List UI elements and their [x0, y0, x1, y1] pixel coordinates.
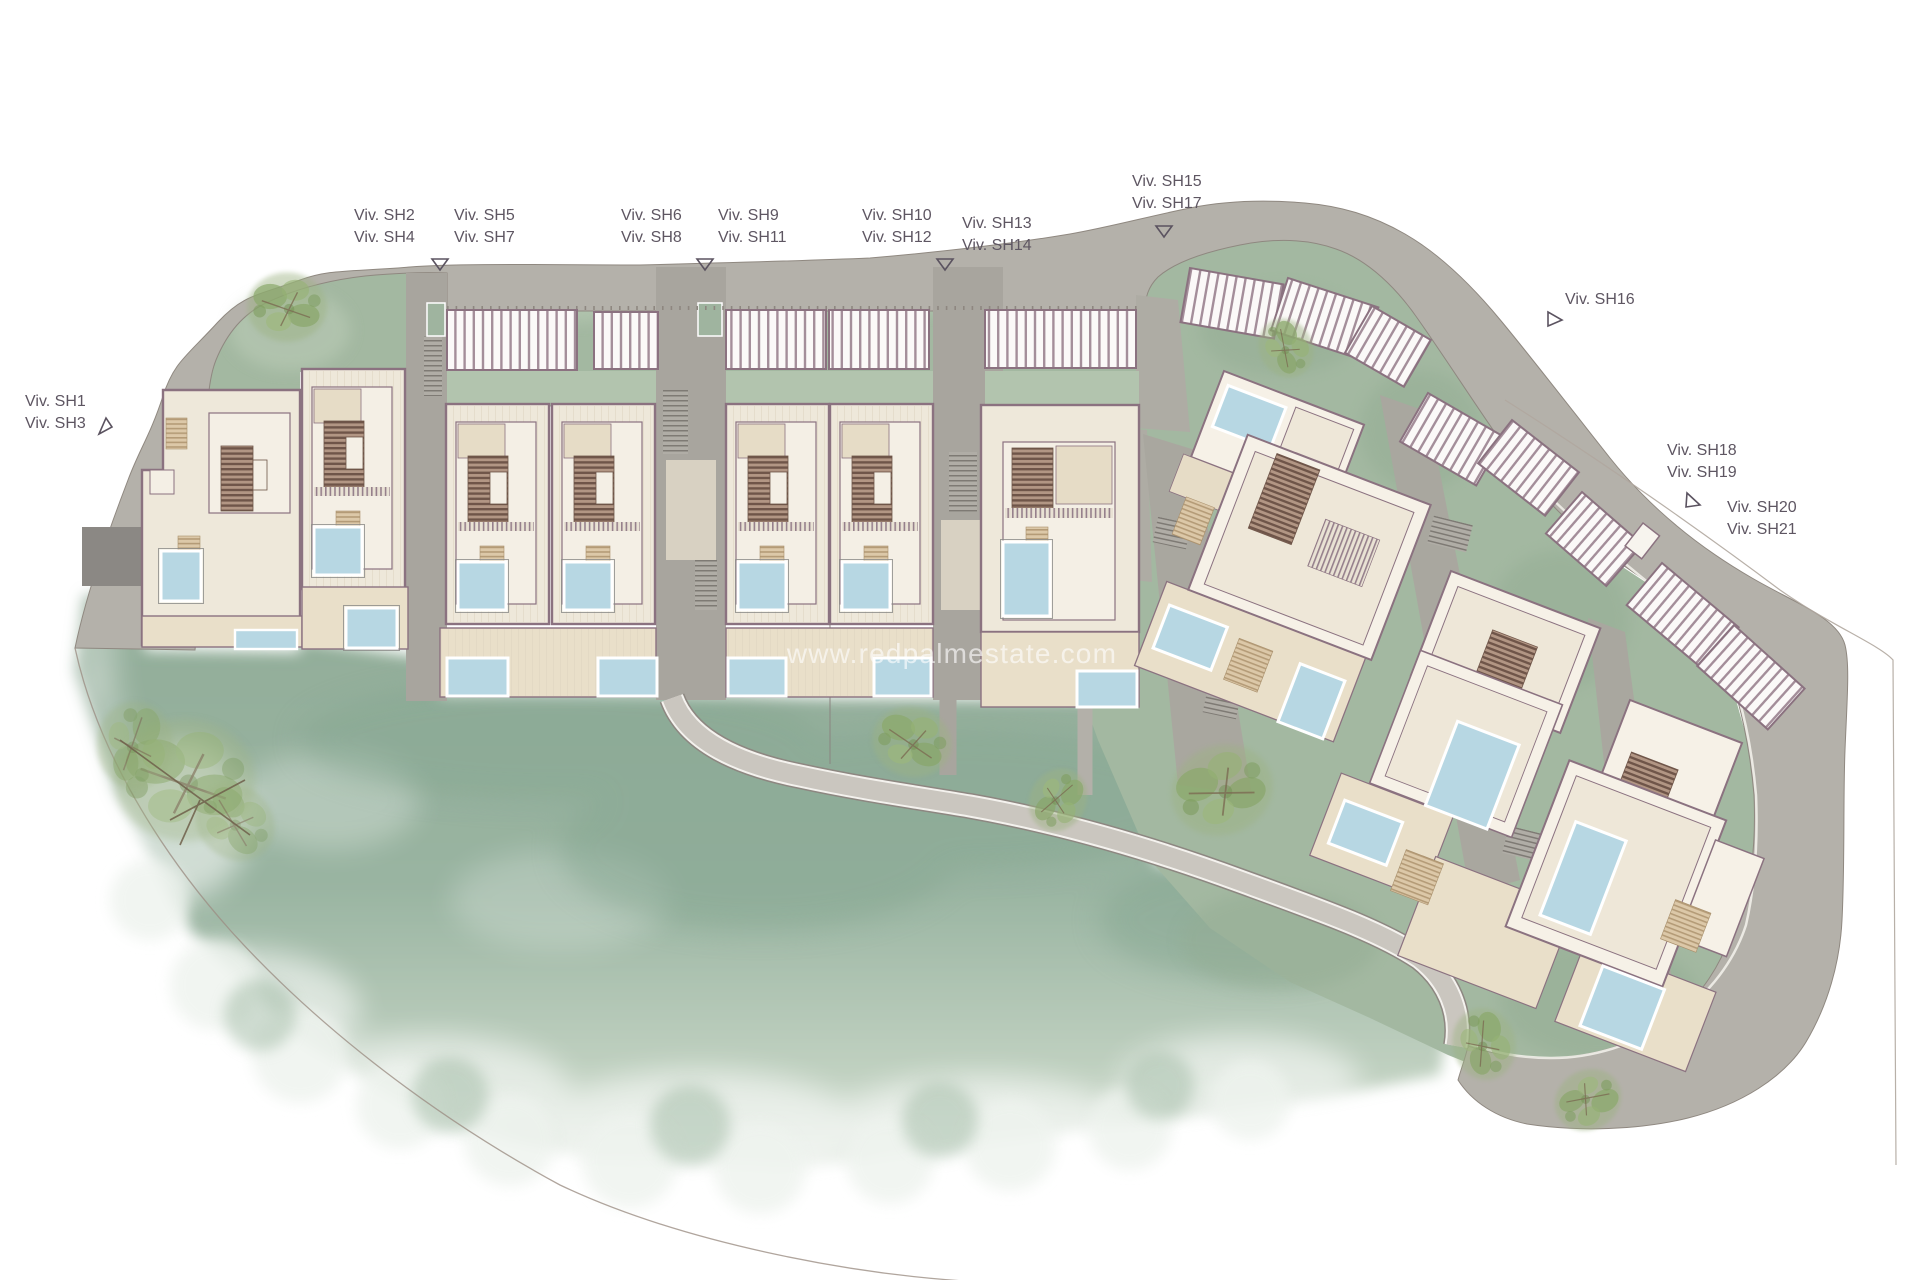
- svg-text:Viv. SH11: Viv. SH11: [718, 229, 787, 246]
- svg-text:Viv. SH14: Viv. SH14: [962, 237, 1032, 254]
- svg-text:Viv. SH18: Viv. SH18: [1667, 442, 1737, 459]
- svg-text:Viv. SH9: Viv. SH9: [718, 207, 779, 224]
- svg-text:www.redpalmestate.com: www.redpalmestate.com: [786, 638, 1117, 669]
- svg-text:Viv. SH8: Viv. SH8: [621, 229, 682, 246]
- svg-text:Viv. SH15: Viv. SH15: [1132, 173, 1202, 190]
- svg-text:Viv. SH3: Viv. SH3: [25, 415, 86, 432]
- svg-text:Viv. SH1: Viv. SH1: [25, 393, 86, 410]
- svg-text:Viv. SH12: Viv. SH12: [862, 229, 932, 246]
- svg-text:Viv. SH19: Viv. SH19: [1667, 464, 1737, 481]
- svg-text:Viv. SH10: Viv. SH10: [862, 207, 932, 224]
- svg-text:Viv. SH7: Viv. SH7: [454, 229, 515, 246]
- svg-text:Viv. SH20: Viv. SH20: [1727, 499, 1797, 516]
- svg-text:Viv. SH5: Viv. SH5: [454, 207, 515, 224]
- svg-text:Viv. SH13: Viv. SH13: [962, 215, 1032, 232]
- svg-text:Viv. SH21: Viv. SH21: [1727, 521, 1797, 538]
- svg-text:Viv. SH2: Viv. SH2: [354, 207, 415, 224]
- svg-text:Viv. SH16: Viv. SH16: [1565, 291, 1635, 308]
- svg-text:Viv. SH4: Viv. SH4: [354, 229, 415, 246]
- svg-text:Viv. SH6: Viv. SH6: [621, 207, 682, 224]
- svg-text:Viv. SH17: Viv. SH17: [1132, 195, 1202, 212]
